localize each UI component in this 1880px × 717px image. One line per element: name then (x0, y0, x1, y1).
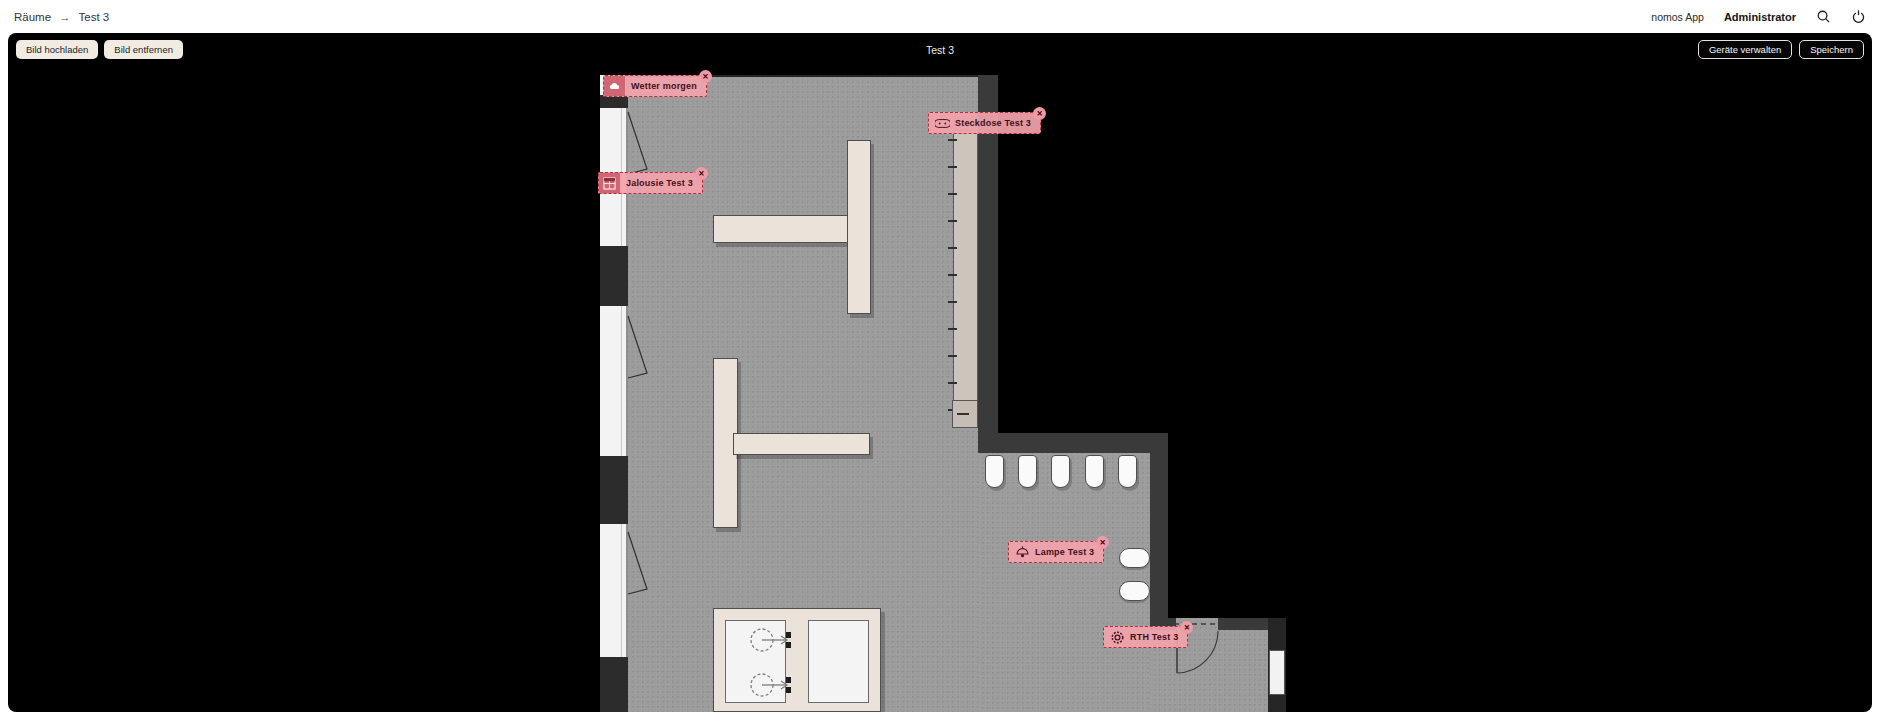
header-right: nomos App Administrator (1651, 9, 1866, 24)
socket-icon (934, 115, 950, 131)
device-tag-label: Steckdose Test 3 (955, 118, 1031, 128)
cloud-icon (604, 76, 625, 96)
wall-left-facade (600, 75, 628, 712)
remove-image-button[interactable]: Bild entfernen (104, 40, 183, 59)
toolbar-right: Geräte verwalten Speichern (1691, 40, 1864, 59)
wall-left-segment (600, 246, 628, 306)
wc-cell-left (725, 620, 786, 703)
urinal (1085, 455, 1104, 488)
tag-close-button[interactable]: ✕ (1033, 107, 1046, 120)
blinds-icon (599, 173, 620, 193)
thermostat-icon (1109, 629, 1125, 645)
plan-toolbar: Bild hochladen Bild entfernen Test 3 Ger… (16, 40, 1864, 60)
breadcrumb-rooms[interactable]: Räume (14, 11, 51, 23)
wardrobe-shelf (953, 130, 978, 428)
wall-mid-vertical (1150, 453, 1168, 630)
manage-devices-button[interactable]: Geräte verwalten (1698, 40, 1792, 59)
app-header: Räume → Test 3 nomos App Administrator (0, 0, 1880, 33)
upload-image-button[interactable]: Bild hochladen (16, 40, 98, 59)
user-name[interactable]: Administrator (1724, 11, 1796, 23)
basin (1119, 581, 1150, 601)
device-tag-label: RTH Test 3 (1130, 632, 1178, 642)
room-title: Test 3 (926, 44, 954, 56)
power-icon[interactable] (1851, 9, 1866, 24)
device-tag-lamp[interactable]: Lampe Test 3✕ (1008, 541, 1104, 563)
window-lower-right (1269, 650, 1285, 695)
wall-bottom-right (1218, 618, 1268, 630)
window-frame-line (621, 75, 622, 712)
wc-block (713, 608, 881, 712)
breadcrumb-current-room: Test 3 (79, 11, 110, 23)
basin (1119, 548, 1150, 568)
lamp-icon (1014, 544, 1030, 560)
urinal (1051, 455, 1070, 488)
tag-close-button[interactable]: ✕ (695, 167, 708, 180)
device-tag-socket[interactable]: Steckdose Test 3✕ (928, 112, 1041, 134)
table-top-bar (713, 215, 848, 243)
app-name[interactable]: nomos App (1651, 11, 1704, 23)
table-top-stem (847, 140, 871, 314)
plan-canvas: Bild hochladen Bild entfernen Test 3 Ger… (8, 33, 1872, 712)
urinal (985, 455, 1004, 488)
wc-cell-right (808, 620, 869, 703)
device-tag-blinds[interactable]: Jalousie Test 3✕ (598, 172, 703, 194)
shelf-cabinet (952, 400, 978, 428)
device-tag-label: Jalousie Test 3 (626, 178, 693, 188)
wall-left-segment (600, 456, 628, 524)
urinal (1118, 455, 1137, 488)
wall-left-segment (600, 657, 628, 712)
floorplan[interactable]: Wetter morgen✕Steckdose Test 3✕Jalousie … (600, 72, 1290, 712)
toolbar-left: Bild hochladen Bild entfernen (16, 40, 189, 59)
device-tag-label: Wetter morgen (631, 81, 697, 91)
breadcrumb: Räume → Test 3 (14, 11, 109, 23)
device-tag-thermostat[interactable]: RTH Test 3✕ (1103, 626, 1188, 648)
table-bottom-bar (733, 433, 870, 455)
save-button[interactable]: Speichern (1799, 40, 1864, 59)
wall-mid-horizontal (978, 433, 1168, 453)
search-icon[interactable] (1816, 9, 1831, 24)
device-tag-label: Lampe Test 3 (1035, 547, 1094, 557)
breadcrumb-arrow-icon: → (59, 11, 71, 23)
urinal (1018, 455, 1037, 488)
tag-close-button[interactable]: ✕ (699, 70, 712, 83)
device-tag-weather[interactable]: Wetter morgen✕ (603, 75, 707, 97)
